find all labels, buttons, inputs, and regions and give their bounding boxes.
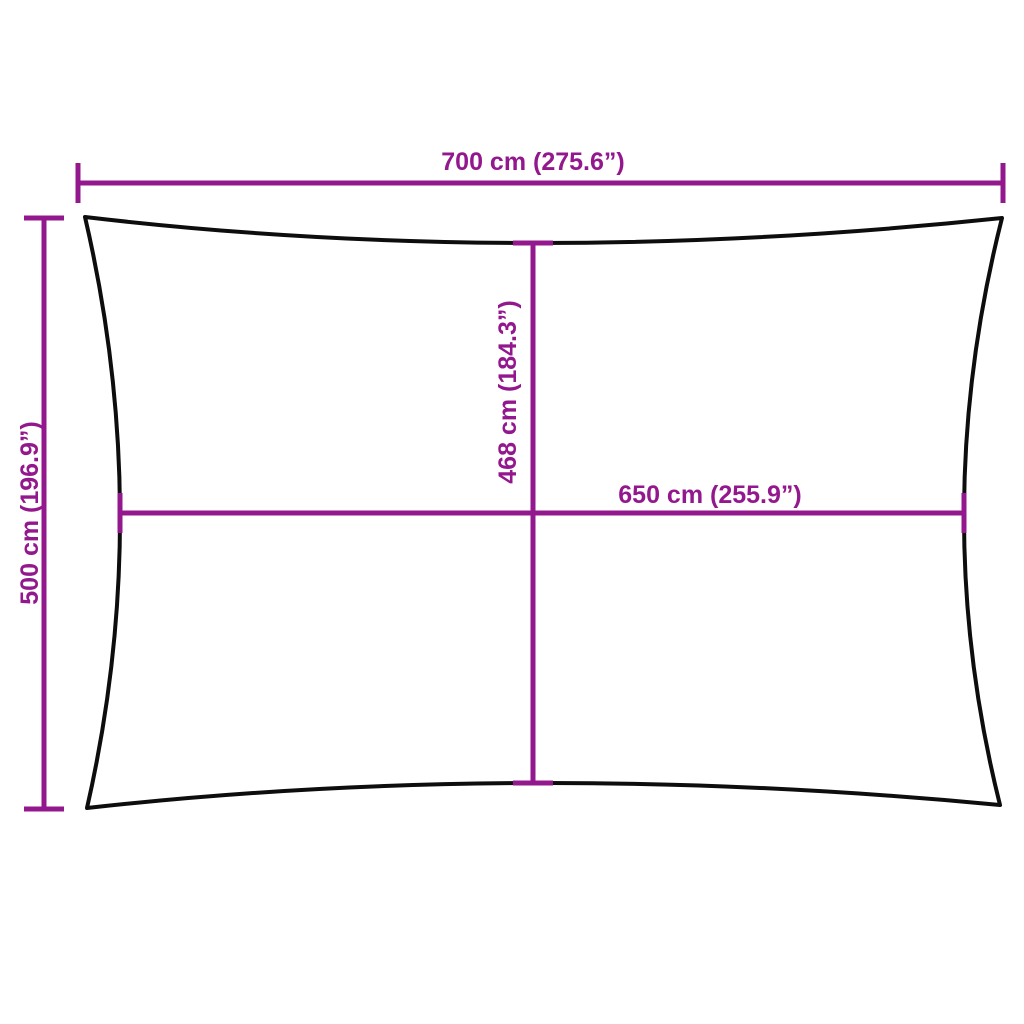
dimension-label-inner-width: 650 cm (255.9”) — [618, 481, 801, 509]
shade-sail-dimension-diagram: 700 cm (275.6”) 500 cm (196.9”) 468 cm (… — [0, 0, 1024, 1024]
dimension-overall-width: 700 cm (275.6”) — [78, 148, 1003, 203]
dimension-label-inner-height: 468 cm (184.3”) — [494, 300, 522, 483]
dimension-diagram-canvas: 700 cm (275.6”) 500 cm (196.9”) 468 cm (… — [0, 0, 1024, 1024]
dimension-label-overall-width: 700 cm (275.6”) — [441, 148, 624, 176]
dimension-overall-height: 500 cm (196.9”) — [16, 218, 64, 809]
dimension-label-overall-height: 500 cm (196.9”) — [16, 421, 44, 604]
